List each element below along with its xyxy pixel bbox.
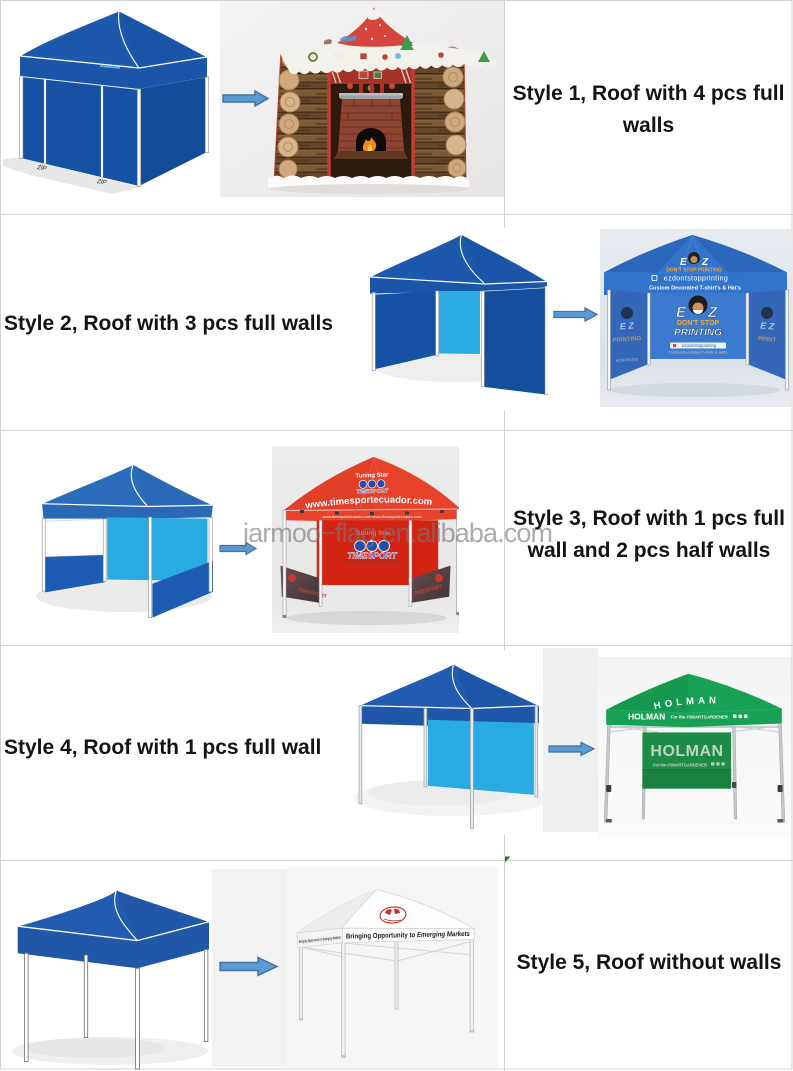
svg-text:Tuning Star: Tuning Star: [355, 472, 389, 479]
svg-text:For the #SMARTGARDENER: For the #SMARTGARDENER: [653, 763, 708, 768]
svg-text:PRINTING: PRINTING: [674, 328, 722, 339]
svg-text:ezdontstopprinting: ezdontstopprinting: [682, 343, 717, 348]
svg-text:Z: Z: [701, 257, 709, 268]
svg-text:For the #SMARTGARDENER: For the #SMARTGARDENER: [671, 715, 729, 720]
svg-text:E Z: E Z: [619, 320, 634, 331]
svg-text:Custom Decorated T-shirt's & H: Custom Decorated T-shirt's & Hat's: [649, 286, 741, 292]
svg-text:DON'T STOP: DON'T STOP: [677, 320, 720, 327]
svg-text:TIMESPORT: TIMESPORT: [347, 551, 397, 561]
svg-text:PRINT: PRINT: [758, 336, 777, 343]
svg-text:HOLMAN: HOLMAN: [628, 712, 665, 722]
svg-text:HOLMAN: HOLMAN: [650, 743, 723, 760]
svg-text:E: E: [680, 257, 687, 268]
svg-text:TIMESPORT: TIMESPORT: [356, 488, 389, 495]
svg-text:Custom Decorated T-shirts & Ha: Custom Decorated T-shirts & Hat's: [669, 351, 727, 355]
svg-text:E: E: [676, 304, 687, 321]
svg-text:E Z: E Z: [760, 321, 775, 332]
svg-text:ezdontstopprinting: ezdontstopprinting: [664, 276, 728, 283]
svg-text:Z: Z: [707, 304, 718, 321]
